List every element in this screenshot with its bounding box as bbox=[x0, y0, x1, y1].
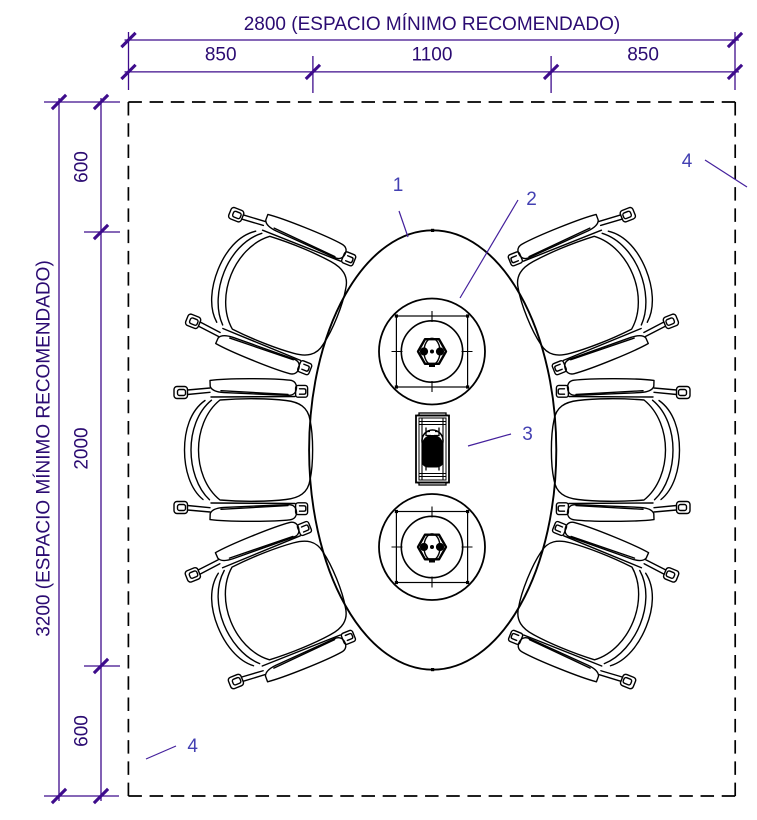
svg-text:2000: 2000 bbox=[72, 427, 93, 469]
svg-text:600: 600 bbox=[72, 151, 93, 183]
svg-text:2: 2 bbox=[526, 189, 537, 210]
svg-text:600: 600 bbox=[72, 715, 93, 747]
svg-text:4: 4 bbox=[187, 736, 198, 757]
svg-text:850: 850 bbox=[205, 45, 237, 66]
svg-text:3: 3 bbox=[522, 424, 533, 445]
svg-text:850: 850 bbox=[627, 45, 659, 66]
svg-text:3200 (ESPACIO MÍNIMO RECOMENDA: 3200 (ESPACIO MÍNIMO RECOMENDADO) bbox=[34, 260, 55, 637]
svg-text:1100: 1100 bbox=[412, 45, 453, 66]
svg-text:4: 4 bbox=[682, 151, 693, 172]
svg-text:2800 (ESPACIO MÍNIMO RECOMENDA: 2800 (ESPACIO MÍNIMO RECOMENDADO) bbox=[244, 14, 621, 35]
svg-text:1: 1 bbox=[393, 175, 404, 196]
